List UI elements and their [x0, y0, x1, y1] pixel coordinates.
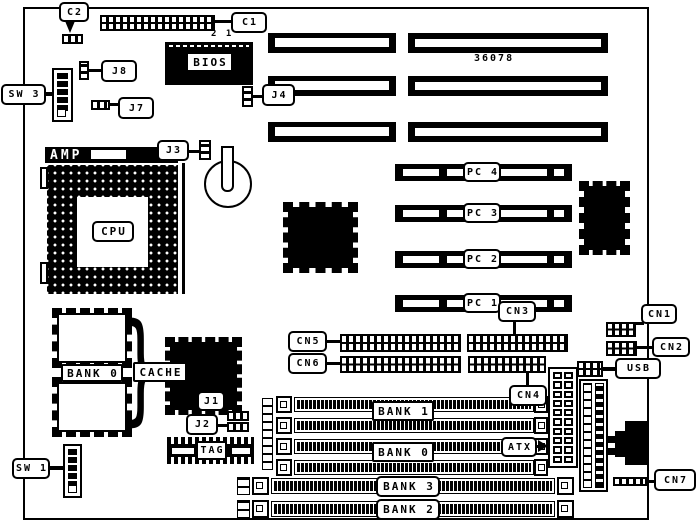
- sw3-seg: [57, 73, 68, 79]
- sw1-label: SW 1: [12, 458, 50, 479]
- atx-pin: [553, 456, 562, 463]
- atx-pin: [564, 400, 573, 407]
- keyboard-connector-collar: [615, 431, 626, 457]
- atx-pin: [564, 391, 573, 398]
- bank0-slot-b: [294, 460, 534, 475]
- clip-hook: [538, 464, 545, 471]
- pc2-label: PC 2: [463, 249, 501, 269]
- clip-hook: [280, 401, 287, 408]
- j8-connector: [79, 61, 89, 80]
- bank2-end-block: [237, 500, 250, 518]
- sw3-seg: [57, 81, 68, 87]
- c2-pointer: [65, 21, 75, 33]
- isa-slot-1-right-key: [415, 39, 601, 47]
- atx-pin: [564, 446, 573, 453]
- j4-connector-pins: [244, 88, 251, 105]
- keyboard-connector: [625, 421, 649, 465]
- j2-label: J2: [186, 414, 218, 435]
- bank3-end-block: [237, 477, 250, 495]
- usb-header-pins: [579, 363, 601, 375]
- bank1-label: BANK 1: [372, 401, 434, 421]
- c1-leader: [215, 20, 232, 23]
- pc1-label: PC 1: [463, 293, 501, 313]
- tag-chip-slot-right: [232, 448, 250, 454]
- cn4-header-pins: [470, 358, 544, 371]
- clip-hook: [561, 482, 568, 489]
- cn4-header: [468, 356, 546, 373]
- j3-leader: [188, 150, 200, 153]
- cache-label: CACHE: [133, 362, 187, 382]
- j7-connector-pins: [93, 102, 108, 108]
- atx-pin: [564, 428, 573, 435]
- j7-connector: [91, 100, 110, 110]
- socket-lever: [182, 163, 185, 294]
- board-number: 36078: [474, 53, 514, 64]
- isa-slot-2-right-key: [415, 82, 601, 90]
- c1-label: C1: [231, 12, 267, 33]
- cn3-header: [467, 334, 568, 352]
- amp-label: AMP: [50, 148, 82, 163]
- pc4-label: PC 4: [463, 162, 501, 182]
- bank2-label: BANK 2: [376, 499, 440, 520]
- atx-pin: [564, 409, 573, 416]
- j3-label: J3: [157, 140, 189, 161]
- pc3-label: PC 3: [463, 203, 501, 223]
- cn5-header-pins: [342, 336, 459, 350]
- isa-slot-3-left-key: [275, 127, 389, 136]
- cn2-label: CN2: [652, 337, 690, 357]
- cn4-label: CN4: [509, 385, 547, 406]
- tag-label: TAG: [196, 441, 227, 460]
- sw3-switch: [52, 68, 73, 122]
- cn2-leader: [636, 346, 653, 349]
- cn2-header-pins: [608, 343, 635, 354]
- cn6-header-pins: [342, 358, 459, 371]
- c1-header-pins: [102, 17, 213, 29]
- bank0-slot-b-contacts: [297, 463, 531, 472]
- bank0-slot-b-clip-left: [276, 459, 292, 476]
- j2-connector-pins: [229, 424, 247, 430]
- pci-slot-1-key1: [403, 300, 439, 307]
- atx-pin: [553, 391, 562, 398]
- sw1-seg: [68, 457, 77, 463]
- cn3-leader: [513, 321, 516, 335]
- socket-tab-bottom: [40, 262, 48, 284]
- aux-power-pins-right: [595, 383, 604, 488]
- bank3-clip-right: [557, 477, 574, 495]
- usb-header: [577, 361, 603, 377]
- bank2-clip-left: [252, 500, 269, 518]
- sram-chip-2: [57, 382, 127, 432]
- pci-slot-3-key1: [403, 210, 439, 217]
- clip-hook: [280, 443, 287, 450]
- motherboard-diagram: C1 2 1 C2 BIOS J8 SW 3 J7 36078 J4 AMP C…: [0, 0, 700, 524]
- battery-post: [221, 146, 234, 192]
- j4-label: J4: [262, 84, 295, 106]
- clip-hook: [538, 422, 545, 429]
- j8-label: J8: [101, 60, 137, 82]
- sw3-seg: [57, 89, 68, 95]
- amp-window: [91, 150, 126, 159]
- bios-label: BIOS: [187, 53, 232, 71]
- sw1-off-key: [68, 485, 77, 493]
- atx-pin: [564, 456, 573, 463]
- pci-slot-4-key1: [403, 169, 439, 176]
- cache-bank0-label: BANK 0: [61, 364, 123, 382]
- sw3-label: SW 3: [1, 84, 46, 105]
- pci-slot-2-notch: [554, 256, 564, 263]
- j2-leader: [217, 424, 228, 427]
- sw3-off-key: [57, 109, 66, 117]
- clip-hook: [256, 505, 263, 512]
- sw1-switch: [63, 444, 82, 498]
- cn7-header-pins: [615, 479, 645, 484]
- keyboard-connector-tab-2: [608, 448, 616, 455]
- sw1-seg: [68, 473, 77, 479]
- atx-power-connector: [548, 367, 578, 468]
- isa-slot-1-left-key: [275, 38, 389, 47]
- isa-slot-3-right-key: [415, 128, 601, 136]
- atx-pointer: [538, 440, 548, 452]
- atx-pin: [564, 437, 573, 444]
- j7-label: J7: [118, 97, 154, 119]
- cn3-label: CN3: [498, 301, 536, 322]
- j8-leader: [89, 69, 101, 72]
- j2-connector: [227, 422, 249, 432]
- j3-connector: [199, 140, 211, 160]
- cn7-header: [613, 477, 647, 486]
- atx-pin: [553, 437, 562, 444]
- j8-connector-pins: [81, 63, 87, 78]
- bank0-slot-b-clip-right: [534, 459, 548, 476]
- cn1-header-pins: [608, 324, 634, 335]
- cn7-label: CN7: [654, 469, 696, 491]
- sw1-seg: [68, 465, 77, 471]
- clip-hook: [561, 505, 568, 512]
- bank1-slot-b-contacts: [297, 421, 531, 430]
- atx-pin: [553, 409, 562, 416]
- socket-tab-top: [40, 167, 48, 189]
- c2-connector-pins: [64, 36, 81, 42]
- bank0-slot-a-clip-left: [276, 438, 292, 455]
- atx-pin: [553, 418, 562, 425]
- cn5-label: CN5: [288, 331, 327, 352]
- sw1-leader: [49, 466, 64, 470]
- sram-chip-1: [57, 313, 127, 363]
- simm-end-column: [262, 398, 273, 470]
- atx-pin: [553, 446, 562, 453]
- atx-pin: [553, 381, 562, 388]
- bank3-clip-left: [252, 477, 269, 495]
- clip-hook: [256, 482, 263, 489]
- tag-chip-slot-left: [172, 448, 194, 454]
- cn1-header: [606, 322, 636, 337]
- bank2-clip-right: [557, 500, 574, 518]
- atx-pin: [564, 372, 573, 379]
- bios-chip-notch: [169, 45, 249, 47]
- pci-slot-3-notch: [554, 210, 564, 217]
- c2-connector: [62, 34, 83, 44]
- bank3-label: BANK 3: [376, 476, 440, 497]
- aux-power-pins-left: [583, 383, 592, 488]
- clip-hook: [280, 464, 287, 471]
- j3-connector-pins: [201, 142, 209, 158]
- io-controller-chip: [584, 186, 625, 250]
- c1-header: [100, 15, 215, 31]
- usb-label: USB: [615, 358, 661, 379]
- bank0-label: BANK 0: [372, 442, 434, 462]
- cn5-leader: [326, 340, 341, 343]
- clip-hook: [280, 422, 287, 429]
- atx-label: ATX: [501, 437, 537, 457]
- bank1-slot-b-clip-right: [534, 417, 548, 434]
- c1-pin-numbers: 2 1: [211, 29, 233, 39]
- cn1-label: CN1: [641, 304, 677, 324]
- atx-pin: [553, 400, 562, 407]
- c2-label: C2: [59, 2, 89, 22]
- cn6-label: CN6: [288, 353, 327, 374]
- keyboard-connector-tab-1: [608, 436, 616, 443]
- j1-connector-pins: [229, 413, 247, 419]
- cpu-label: CPU: [92, 221, 134, 242]
- pci-slot-4-notch: [554, 169, 564, 176]
- cn2-header: [606, 341, 637, 356]
- bank1-slot-a-clip-left: [276, 396, 292, 413]
- cn6-header: [340, 356, 461, 373]
- j1-label: J1: [197, 391, 225, 411]
- pci-slot-2-key1: [403, 256, 439, 263]
- pci-slot-1-notch: [554, 300, 564, 307]
- sw3-seg: [57, 97, 68, 103]
- bank1-slot-b-clip-left: [276, 417, 292, 434]
- cn6-leader: [326, 362, 341, 365]
- cn3-header-pins: [469, 336, 566, 350]
- sw1-seg: [68, 449, 77, 455]
- usb-leader: [602, 367, 616, 371]
- cn5-header: [340, 334, 461, 352]
- atx-pin: [553, 428, 562, 435]
- atx-pin: [553, 372, 562, 379]
- j1-connector: [227, 411, 249, 421]
- atx-pin: [564, 381, 573, 388]
- chipset-chip: [288, 207, 353, 268]
- atx-pin: [564, 418, 573, 425]
